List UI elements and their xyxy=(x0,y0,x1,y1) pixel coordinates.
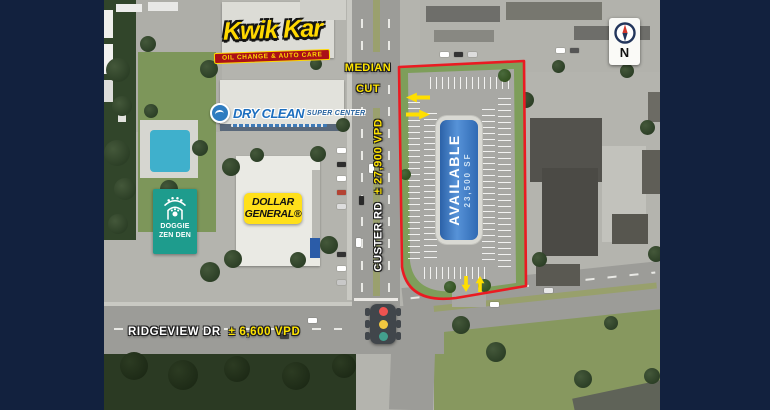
tree xyxy=(108,214,128,234)
tree xyxy=(224,250,242,268)
dry-clean-tagline-bar xyxy=(231,124,327,127)
traffic-light-tab xyxy=(396,332,401,340)
tree xyxy=(552,60,565,73)
tree xyxy=(604,316,618,330)
car xyxy=(337,162,346,167)
custer-rd-vpd: ± 27,900 VPD xyxy=(373,119,385,195)
tree xyxy=(282,362,310,390)
traffic-light-tab xyxy=(365,308,370,316)
car xyxy=(337,190,346,195)
truck xyxy=(104,10,113,38)
compass-north-letter: N xyxy=(620,46,629,59)
building-roof xyxy=(648,92,660,122)
available-parcel: AVAILABLE 23,500 SF xyxy=(394,55,534,303)
bush xyxy=(400,169,411,180)
road-custer-south xyxy=(389,351,435,410)
tree xyxy=(620,64,634,78)
building-roof xyxy=(612,214,648,244)
traffic-light-tab xyxy=(365,332,370,340)
dollar-general-line2: GENERAL® xyxy=(245,209,302,220)
building-roof xyxy=(506,2,602,20)
dry-clean-wordmark: DRY CLEAN xyxy=(233,106,304,121)
traffic-light-icon xyxy=(370,304,396,344)
car xyxy=(337,148,346,153)
parking-stripes xyxy=(424,110,437,258)
lane-marking xyxy=(361,8,363,292)
tree xyxy=(140,36,156,52)
tree xyxy=(144,104,158,118)
tree xyxy=(532,252,547,267)
car xyxy=(337,252,346,257)
kwik-kar-tagline: OIL CHANGE & AUTO CARE xyxy=(214,49,331,64)
car xyxy=(544,288,553,293)
custer-rd-label: CUSTER RD ± 27,900 VPD xyxy=(373,108,387,283)
median-cut-line2: CUT xyxy=(356,83,380,95)
parcel-size: 23,500 SF xyxy=(463,153,472,208)
site-plan-canvas: AVAILABLE 23,500 SF Kwik Kar OIL CHANGE … xyxy=(0,0,770,410)
tree xyxy=(486,342,506,362)
tree xyxy=(168,360,198,390)
car xyxy=(337,176,346,181)
car xyxy=(356,238,361,247)
tree xyxy=(648,246,660,262)
tree xyxy=(644,368,660,384)
doggie-line2: ZEN DEN xyxy=(159,232,191,239)
pool xyxy=(150,130,190,172)
ridgeview-dr-vpd: ± 6,600 VPD xyxy=(229,326,301,338)
car xyxy=(337,204,346,209)
traffic-light-tab xyxy=(396,308,401,316)
bush xyxy=(498,69,511,82)
north-compass-icon: N xyxy=(609,18,640,65)
ridgeview-dr-label: RIDGEVIEW DR ± 6,600 VPD xyxy=(128,326,300,338)
tree xyxy=(640,120,655,135)
car xyxy=(308,318,317,323)
shirt-circle-icon xyxy=(210,103,230,123)
parking-stripes xyxy=(482,105,495,260)
tree xyxy=(320,236,338,254)
doggie-line1: DOGGIE xyxy=(160,223,189,230)
building-roof xyxy=(434,30,494,42)
building-roof xyxy=(542,168,598,256)
car xyxy=(359,196,364,205)
dollar-general-line1: DOLLAR xyxy=(252,197,294,208)
median-cut-line1: MEDIAN xyxy=(345,62,391,74)
tree xyxy=(574,370,592,388)
lane-marking xyxy=(388,8,390,292)
road-median xyxy=(373,0,380,52)
bush xyxy=(444,281,456,293)
tree xyxy=(120,352,148,380)
parcel-status: AVAILABLE xyxy=(446,134,462,226)
tree xyxy=(290,252,306,268)
available-label: AVAILABLE 23,500 SF xyxy=(446,134,472,226)
truck xyxy=(148,2,178,11)
car xyxy=(570,48,579,53)
kwik-kar-logo: Kwik Kar OIL CHANGE & AUTO CARE xyxy=(197,16,347,63)
dry-clean-subname: SUPER CENTER xyxy=(307,110,365,117)
kwik-kar-wordmark: Kwik Kar xyxy=(222,14,322,46)
tree xyxy=(452,316,470,334)
custer-rd-name: CUSTER RD xyxy=(373,202,385,272)
car xyxy=(556,48,565,53)
car xyxy=(337,266,346,271)
building-roof xyxy=(426,6,500,22)
parking-stripes xyxy=(408,99,420,259)
pagoda-paw-icon xyxy=(161,193,189,221)
tree xyxy=(250,148,264,162)
tree xyxy=(332,354,356,378)
parking-stripes xyxy=(498,95,511,267)
building-roof xyxy=(642,150,660,194)
aerial-map: AVAILABLE 23,500 SF Kwik Kar OIL CHANGE … xyxy=(104,0,660,410)
ridgeview-dr-name: RIDGEVIEW DR xyxy=(128,326,221,338)
truck xyxy=(104,80,113,102)
tree xyxy=(112,96,132,116)
tree xyxy=(104,140,130,166)
traffic-light-tab xyxy=(396,320,401,328)
median-cut-label: MEDIAN CUT xyxy=(336,58,400,101)
dollar-general-logo: DOLLAR GENERAL® xyxy=(244,193,302,224)
tree xyxy=(192,140,208,156)
sidewalk xyxy=(347,0,352,300)
tree xyxy=(114,178,136,200)
compass-needle-icon xyxy=(613,21,637,45)
traffic-light-amber xyxy=(379,320,388,329)
traffic-light-tab xyxy=(365,320,370,328)
doggie-zen-den-logo: DOGGIE ZEN DEN xyxy=(153,189,197,254)
tree xyxy=(106,58,130,82)
traffic-light-red xyxy=(379,307,388,316)
car xyxy=(337,280,346,285)
dry-clean-logo: DRY CLEAN SUPER CENTER xyxy=(210,103,370,127)
truck xyxy=(116,4,142,12)
building-roof xyxy=(536,264,580,286)
stop-line xyxy=(354,298,398,301)
tree xyxy=(222,158,240,176)
building-awning xyxy=(310,238,320,258)
tree xyxy=(200,262,220,282)
available-building: AVAILABLE 23,500 SF xyxy=(440,120,478,240)
tree xyxy=(224,356,250,382)
traffic-light-green xyxy=(379,332,388,341)
tree xyxy=(310,146,326,162)
